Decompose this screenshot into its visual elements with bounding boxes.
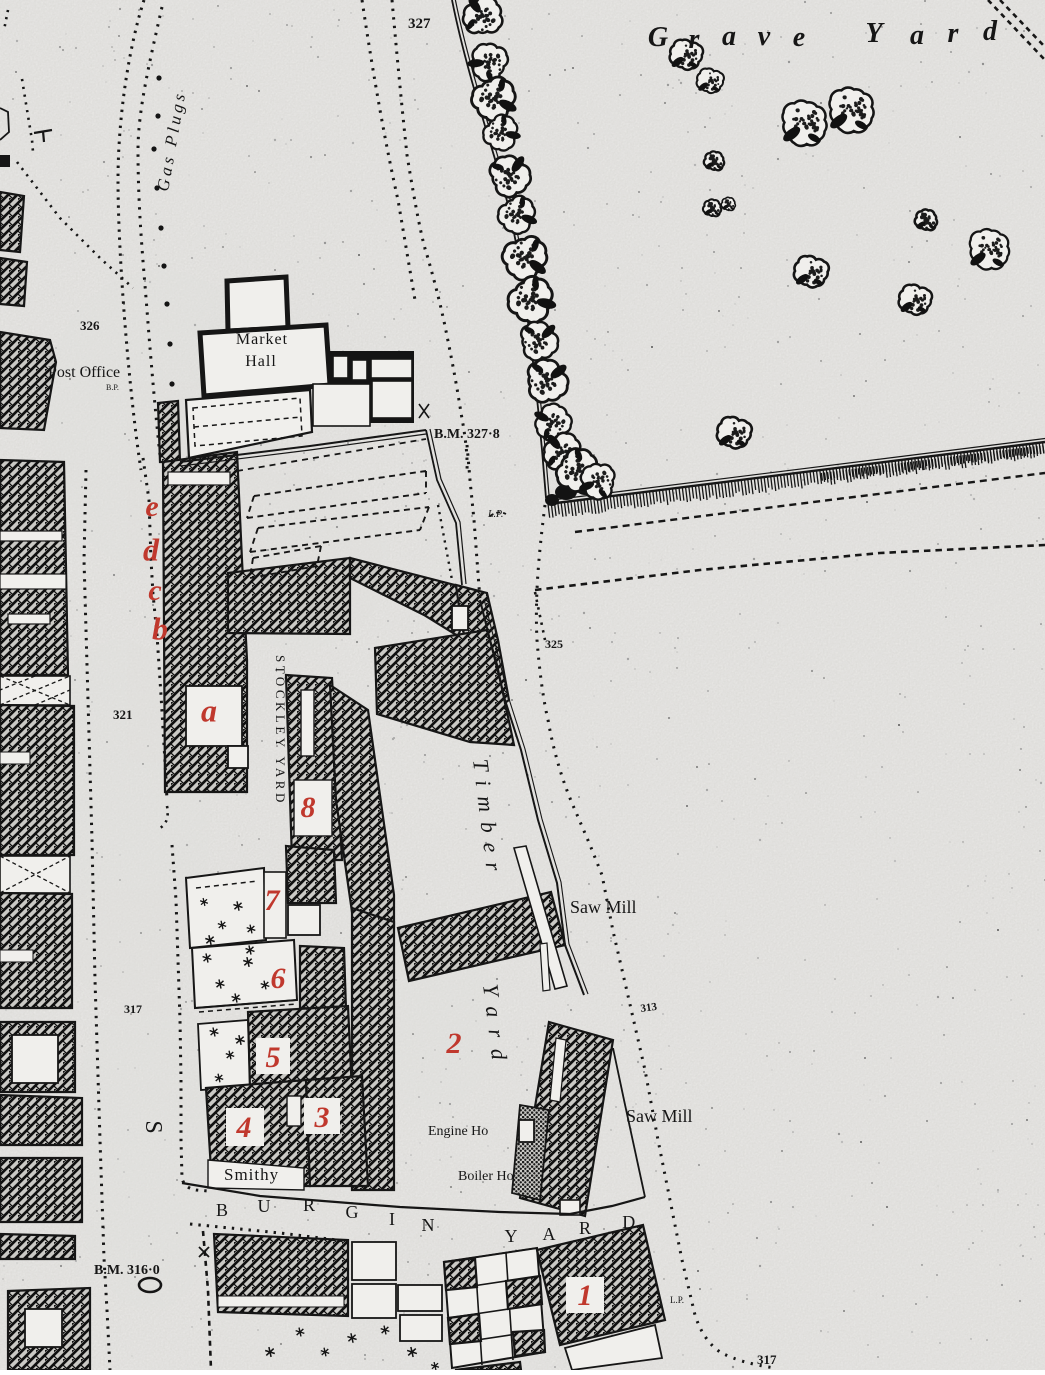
svg-text:B: B — [216, 1200, 228, 1220]
svg-text:S: S — [140, 1120, 166, 1133]
svg-text:L.P.: L.P. — [487, 509, 503, 520]
svg-text:325: 325 — [545, 637, 563, 651]
svg-text:8: 8 — [301, 791, 316, 824]
svg-text:Saw Mill: Saw Mill — [626, 1106, 693, 1126]
svg-text:STOCKLEY YARD: STOCKLEY YARD — [273, 655, 288, 806]
svg-text:321: 321 — [113, 707, 133, 722]
svg-text:L.P.: L.P. — [670, 1295, 684, 1305]
svg-text:d: d — [983, 16, 998, 47]
svg-text:A: A — [543, 1224, 556, 1244]
svg-text:317: 317 — [124, 1002, 142, 1016]
svg-text:2: 2 — [446, 1027, 462, 1060]
svg-text:B.M. 327·8: B.M. 327·8 — [434, 427, 500, 442]
svg-text:B.P.: B.P. — [106, 383, 119, 392]
svg-text:327: 327 — [408, 16, 431, 32]
svg-text:Y: Y — [865, 18, 885, 49]
svg-text:317: 317 — [757, 1352, 777, 1367]
svg-text:c: c — [148, 574, 161, 607]
svg-text:I: I — [389, 1209, 395, 1229]
svg-text:4: 4 — [236, 1111, 252, 1144]
svg-text:Boiler Ho: Boiler Ho — [458, 1169, 514, 1184]
svg-text:R: R — [579, 1218, 591, 1238]
svg-text:Saw Mill: Saw Mill — [570, 897, 637, 917]
svg-text:U: U — [258, 1196, 271, 1216]
svg-text:v: v — [758, 21, 771, 52]
svg-text:Hall: Hall — [245, 353, 277, 370]
svg-text:a: a — [722, 21, 736, 52]
svg-text:326: 326 — [80, 318, 100, 333]
svg-text:D.: D. — [622, 1212, 640, 1232]
svg-text:Post Office: Post Office — [48, 364, 120, 381]
svg-text:7: 7 — [265, 884, 281, 917]
svg-text:r: r — [689, 24, 701, 55]
svg-text:G: G — [346, 1202, 359, 1222]
svg-text:Market: Market — [236, 331, 288, 348]
svg-text:1: 1 — [578, 1279, 593, 1312]
svg-text:6: 6 — [271, 962, 286, 995]
svg-text:Engine Ho: Engine Ho — [428, 1124, 488, 1139]
svg-text:e: e — [793, 22, 805, 53]
svg-text:B.M. 316·0: B.M. 316·0 — [94, 1263, 160, 1278]
svg-text:r: r — [948, 18, 960, 49]
svg-text:b: b — [152, 611, 168, 647]
svg-text:e: e — [145, 490, 158, 523]
svg-text:G: G — [648, 22, 668, 53]
svg-text:a: a — [201, 693, 217, 729]
svg-text:3: 3 — [314, 1101, 330, 1134]
svg-text:5: 5 — [266, 1041, 281, 1074]
svg-text:R: R — [303, 1195, 315, 1215]
svg-text:d: d — [143, 532, 160, 568]
svg-text:a: a — [910, 20, 924, 51]
svg-text:Smithy: Smithy — [224, 1165, 279, 1184]
svg-text:Y: Y — [505, 1226, 518, 1246]
svg-text:N: N — [422, 1215, 435, 1235]
svg-text:313: 313 — [640, 1001, 659, 1015]
